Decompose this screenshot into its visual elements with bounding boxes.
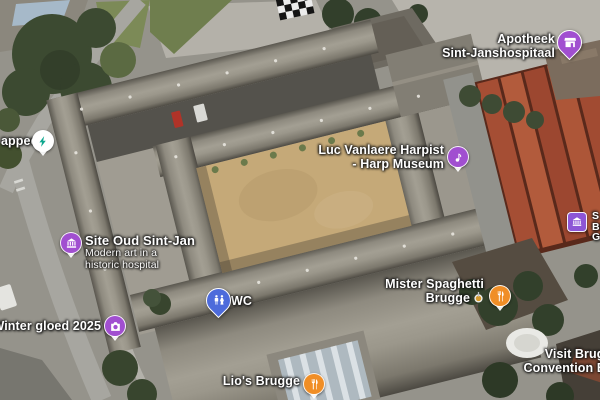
pharmacy-storefront-icon [563,36,577,50]
poi-label-apotheek[interactable]: ApotheekSint-Janshospitaal [442,32,555,60]
music-note-icon [452,151,465,164]
poi-label-lios-brugge[interactable]: Lio's Brugge [223,374,300,388]
restroom-icon [212,294,226,308]
poi-label-wc[interactable]: WC [231,294,252,308]
camera-icon [109,320,122,333]
poi-dot-site-oud-sint-jan[interactable] [60,232,82,254]
poi-dot-winter-gloed[interactable] [104,315,126,337]
poi-dot-mister-spaghetti[interactable] [489,285,511,307]
poi-label-site-oud-sint-jan[interactable]: Site Oud Sint-Jan Modern art in a histor… [85,234,195,271]
poi-dot-lios-brugge[interactable] [303,373,325,395]
poi-label-mister-spaghetti[interactable]: Mister Spaghetti Brugge [385,277,484,306]
poi-label-winter-gloed[interactable]: Winter gloed 2025 [0,319,101,333]
poi-dot-harp-museum[interactable] [447,146,469,168]
restaurant-icon [308,378,321,391]
museum-icon [65,237,78,250]
museum-icon [571,216,583,228]
poi-label-harp-museum[interactable]: Luc Vanlaere Harpist- Harp Museum [318,143,444,171]
poi-label-visit-brugge[interactable]: Visit BruggeConvention Bureau [512,347,600,375]
poi-dot-charging[interactable] [32,130,54,152]
charging-bolt-icon [37,135,50,148]
poi-label-edge-fragments[interactable]: SBrG [592,211,600,243]
poi-square-edge-museum[interactable] [567,212,587,232]
map-viewport[interactable]: ApotheekSint-Janshospitaal appee Luc Van… [0,0,600,400]
satellite-map-canvas[interactable] [0,0,600,400]
spaghetti-emoji-icon [473,292,484,306]
restaurant-icon [494,290,507,303]
